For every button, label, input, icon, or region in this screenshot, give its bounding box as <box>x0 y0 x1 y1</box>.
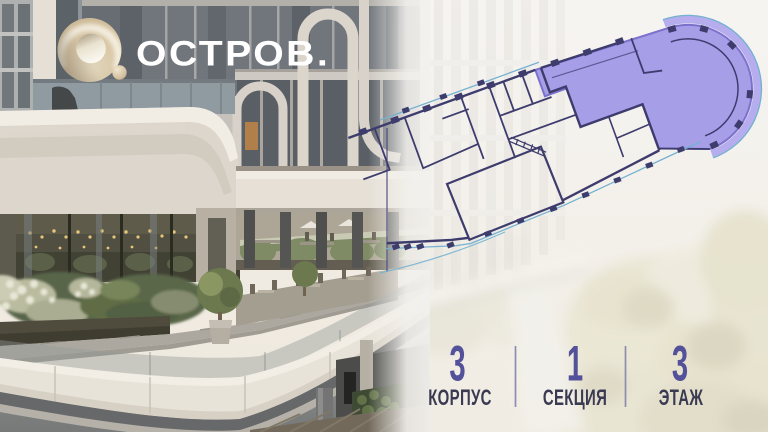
svg-text:3: 3 <box>672 335 688 391</box>
svg-text:СЕКЦИЯ: СЕКЦИЯ <box>543 385 607 410</box>
svg-text:КОРПУС: КОРПУС <box>428 385 492 410</box>
svg-text:3: 3 <box>449 335 465 391</box>
svg-text:1: 1 <box>567 335 583 391</box>
svg-text:ОСТРОВ.: ОСТРОВ. <box>136 33 330 73</box>
svg-text:ЭТАЖ: ЭТАЖ <box>659 385 704 410</box>
